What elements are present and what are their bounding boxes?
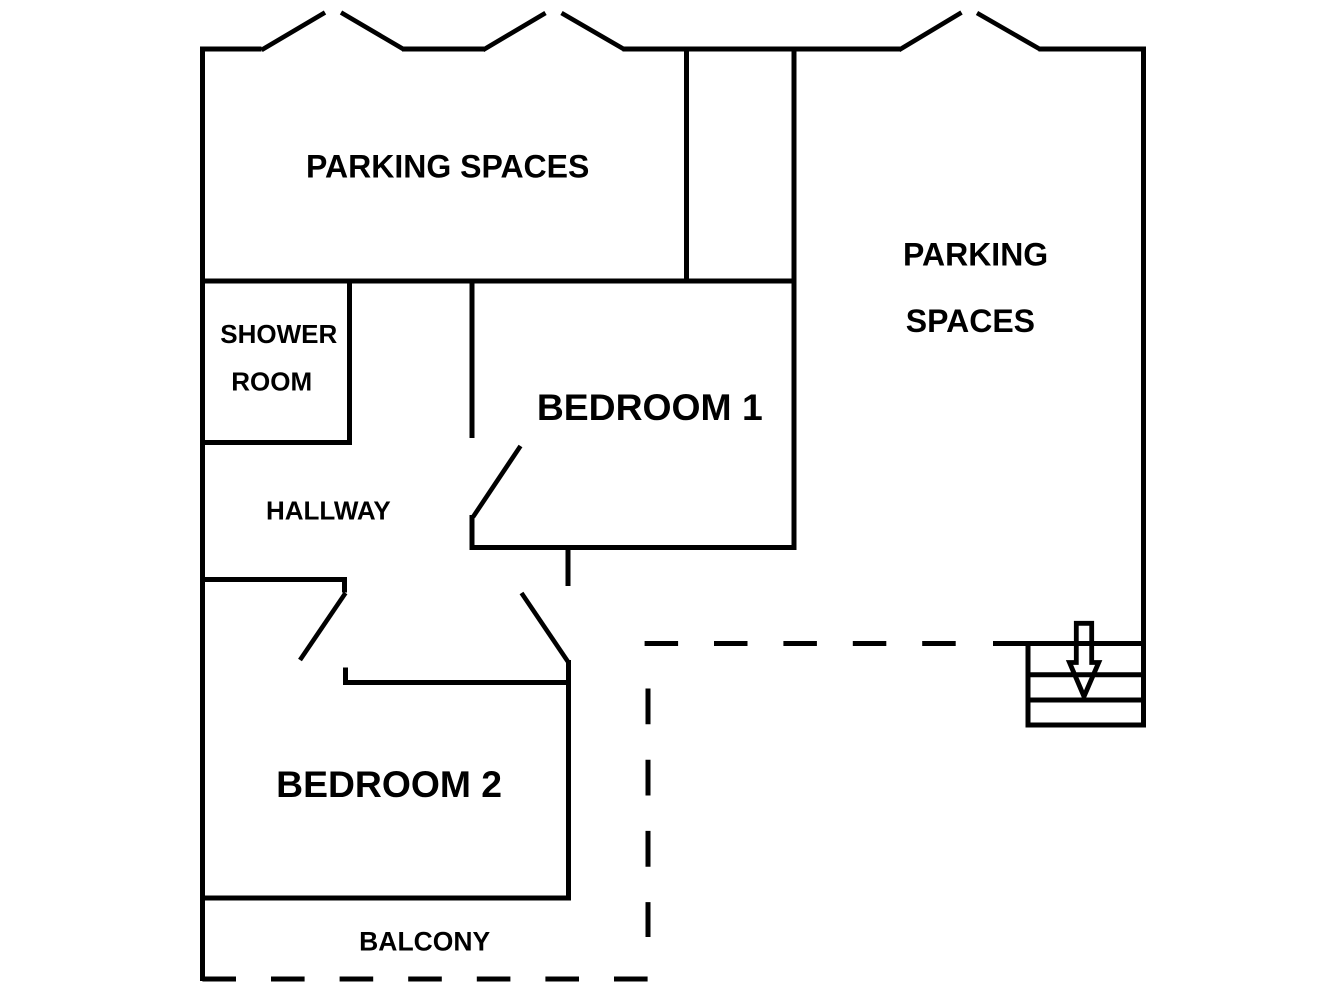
svg-text:ROOM: ROOM: [231, 367, 312, 397]
svg-text:PARKING: PARKING: [903, 237, 1048, 273]
svg-text:BALCONY: BALCONY: [359, 927, 490, 957]
svg-text:SHOWER: SHOWER: [220, 319, 337, 349]
svg-text:PARKING SPACES: PARKING SPACES: [306, 149, 589, 185]
svg-text:BEDROOM 1: BEDROOM 1: [537, 386, 763, 428]
svg-text:SPACES: SPACES: [906, 303, 1035, 339]
svg-text:HALLWAY: HALLWAY: [266, 495, 391, 525]
svg-text:BEDROOM 2: BEDROOM 2: [276, 763, 502, 805]
